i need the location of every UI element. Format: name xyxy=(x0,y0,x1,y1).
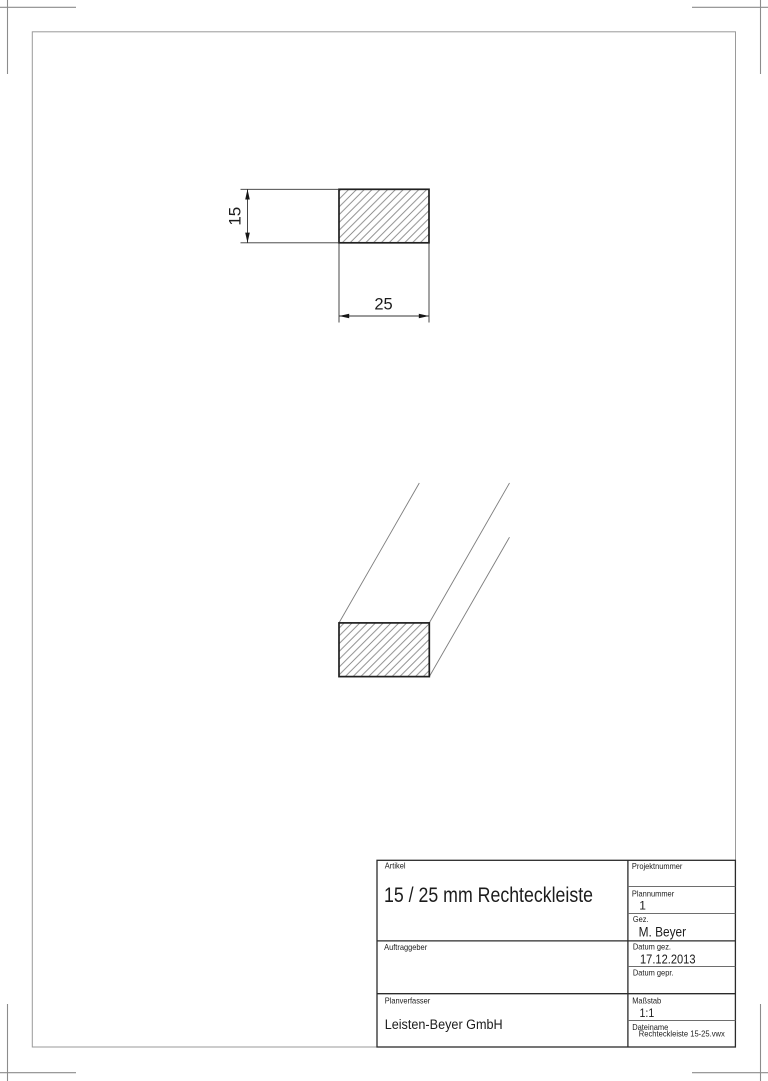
svg-text:25: 25 xyxy=(374,295,392,313)
svg-text:Planverfasser: Planverfasser xyxy=(385,995,431,1005)
svg-text:15 / 25 mm Rechteckleiste: 15 / 25 mm Rechteckleiste xyxy=(384,884,593,907)
svg-text:Maßstab: Maßstab xyxy=(632,995,661,1005)
svg-text:Projektnummer: Projektnummer xyxy=(632,861,683,871)
svg-text:Gez.: Gez. xyxy=(633,914,649,924)
svg-text:Leisten-Beyer GmbH: Leisten-Beyer GmbH xyxy=(385,1017,503,1032)
svg-text:Datum gez.: Datum gez. xyxy=(633,941,671,951)
svg-text:M. Beyer: M. Beyer xyxy=(639,925,687,940)
svg-text:Rechteckleiste 15-25.vwx: Rechteckleiste 15-25.vwx xyxy=(639,1030,725,1039)
svg-text:1: 1 xyxy=(639,898,646,912)
svg-text:17.12.2013: 17.12.2013 xyxy=(640,953,696,967)
svg-text:Artikel: Artikel xyxy=(385,861,406,871)
svg-text:Plannummer: Plannummer xyxy=(632,888,674,898)
svg-text:Auftraggeber: Auftraggeber xyxy=(384,942,427,952)
svg-text:1:1: 1:1 xyxy=(640,1006,655,1020)
svg-text:Datum gepr.: Datum gepr. xyxy=(633,968,674,978)
svg-text:15: 15 xyxy=(226,207,245,226)
